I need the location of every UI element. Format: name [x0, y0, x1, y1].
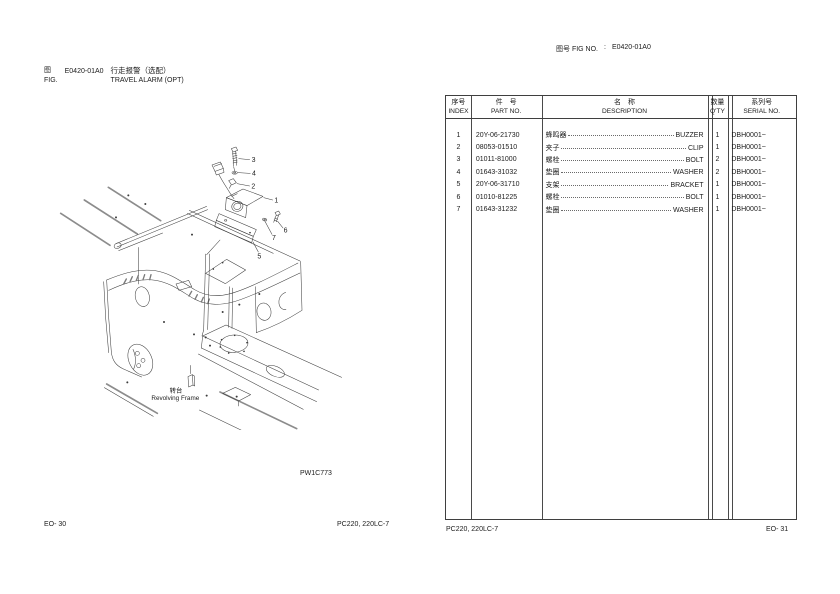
table-row: 2 08053-01510 夹子 CLIP 1 DBH0001~	[446, 141, 796, 153]
row-description-cell: 垫圈 WASHER	[541, 167, 707, 177]
row-index-cell: 7	[446, 206, 471, 213]
dot-leader	[568, 135, 673, 136]
right-page-number: EO- 31	[766, 526, 788, 533]
right-model-label: PC220, 220LC-7	[446, 526, 498, 533]
callout-7: 7	[272, 235, 276, 242]
parts-table-rows: 1 20Y-06-21730 蜂鸣器 BUZZER 1 DBH0001~ 2 0…	[446, 129, 796, 216]
row-qty-cell: 1	[708, 194, 728, 201]
row-desc-en: WASHER	[673, 169, 703, 176]
row-serial-cell: DBH0001~	[727, 194, 796, 201]
row-part-no-cell: 01643-31032	[471, 169, 542, 176]
row-qty-cell: 1	[708, 206, 728, 213]
parts-catalog-page: 图 FIG. E0420-01A0 行走报警（选配） TRAVEL ALARM …	[0, 0, 840, 594]
row-desc-en: BOLT	[686, 157, 704, 164]
row-desc-zh: 螺栓	[545, 155, 559, 165]
dot-leader	[561, 210, 671, 211]
header-part-en: PART NO.	[491, 107, 521, 116]
table-row: 3 01011-81000 螺栓 BOLT 2 DBH0001~	[446, 154, 796, 166]
parts-table: 序号 INDEX 件 号 PART NO. 名 称 DESCRIPTION 数量…	[445, 95, 797, 520]
row-qty-cell: 1	[708, 144, 728, 151]
callout-2: 2	[251, 183, 255, 190]
row-description-cell: 螺栓 BOLT	[541, 192, 707, 202]
row-description-cell: 支架 BRACKET	[541, 180, 707, 190]
header-serial-en: SERIAL NO.	[743, 107, 780, 116]
dot-leader	[561, 148, 685, 149]
dot-leader	[561, 185, 668, 186]
dot-leader	[561, 172, 671, 173]
row-desc-zh: 垫圈	[545, 167, 559, 177]
parts-table-header: 序号 INDEX 件 号 PART NO. 名 称 DESCRIPTION 数量…	[446, 96, 796, 119]
header-desc-en: DESCRIPTION	[602, 107, 647, 116]
figure-title-en: TRAVEL ALARM (OPT)	[111, 76, 184, 86]
row-index-cell: 4	[446, 169, 471, 176]
row-desc-en: BOLT	[686, 194, 704, 201]
callout-1: 1	[274, 198, 278, 205]
figure-header: 图 FIG. E0420-01A0 行走报警（选配） TRAVEL ALARM …	[44, 66, 184, 86]
fig-no-header: 图号 FIG NO. : E0420-01A0	[556, 44, 651, 54]
figure-number: E0420-01A0	[65, 67, 104, 86]
row-desc-en: BUZZER	[676, 132, 704, 139]
row-index-cell: 5	[446, 181, 471, 188]
row-desc-zh: 夹子	[545, 143, 559, 153]
row-index-cell: 6	[446, 194, 471, 201]
row-qty-cell: 2	[708, 156, 728, 163]
callout-3: 3	[252, 157, 256, 164]
callout-4: 4	[252, 171, 256, 178]
row-serial-cell: DBH0001~	[727, 132, 796, 139]
row-part-no-cell: 20Y-06-31710	[471, 181, 542, 188]
table-row: 4 01643-31032 垫圈 WASHER 2 DBH0001~	[446, 166, 796, 178]
row-desc-zh: 垫圈	[545, 205, 559, 215]
table-row: 7 01643-31232 垫圈 WASHER 1 DBH0001~	[446, 203, 796, 215]
drawing-number: PW1C773	[300, 470, 332, 477]
callout-6: 6	[284, 228, 288, 235]
header-index-zh: 序号	[451, 98, 465, 107]
table-row: 5 20Y-06-31710 支架 BRACKET 1 DBH0001~	[446, 179, 796, 191]
row-desc-en: BRACKET	[670, 182, 703, 189]
fig-label-zh: 图	[44, 66, 58, 76]
header-qty-zh: 数量	[710, 98, 724, 107]
callout-5: 5	[257, 254, 261, 261]
row-index-cell: 1	[446, 132, 471, 139]
fig-no-separator: :	[604, 44, 606, 54]
dot-leader	[561, 197, 683, 198]
row-serial-cell: DBH0001~	[727, 156, 796, 163]
table-row: 1 20Y-06-21730 蜂鸣器 BUZZER 1 DBH0001~	[446, 129, 796, 141]
row-description-cell: 蜂鸣器 BUZZER	[541, 130, 707, 140]
parts-diagram: 1 2 3 4 5 6 7 转台 Revolving Frame	[40, 130, 380, 430]
left-model-label: PC220, 220LC-7	[337, 521, 389, 528]
row-serial-cell: DBH0001~	[727, 181, 796, 188]
row-serial-cell: DBH0001~	[727, 144, 796, 151]
row-index-cell: 3	[446, 156, 471, 163]
row-serial-cell: DBH0001~	[727, 206, 796, 213]
frame-label-en: Revolving Frame	[151, 395, 199, 402]
figure-title-zh: 行走报警（选配）	[111, 66, 184, 76]
row-desc-zh: 支架	[545, 180, 559, 190]
row-desc-en: CLIP	[688, 145, 704, 152]
header-serial-zh: 系列号	[751, 98, 772, 107]
row-description-cell: 垫圈 WASHER	[541, 205, 707, 215]
row-desc-zh: 螺栓	[545, 192, 559, 202]
table-row: 6 01010-81225 螺栓 BOLT 1 DBH0001~	[446, 191, 796, 203]
row-desc-en: WASHER	[673, 207, 703, 214]
row-qty-cell: 1	[708, 181, 728, 188]
revolving-frame-drawing	[61, 187, 342, 430]
row-part-no-cell: 20Y-06-21730	[471, 132, 542, 139]
fig-no-label: 图号 FIG NO.	[556, 44, 598, 54]
row-index-cell: 2	[446, 144, 471, 151]
header-desc-zh: 名 称	[614, 98, 635, 107]
row-desc-zh: 蜂鸣器	[545, 130, 566, 140]
fig-label-en: FIG.	[44, 76, 58, 86]
row-part-no-cell: 08053-01510	[471, 144, 542, 151]
row-serial-cell: DBH0001~	[727, 169, 796, 176]
row-qty-cell: 1	[708, 132, 728, 139]
frame-label-zh: 转台	[170, 386, 183, 395]
row-part-no-cell: 01010-81225	[471, 194, 542, 201]
row-part-no-cell: 01011-81000	[471, 156, 542, 163]
row-description-cell: 夹子 CLIP	[541, 143, 707, 153]
row-qty-cell: 2	[708, 169, 728, 176]
fig-no-value: E0420-01A0	[612, 44, 651, 54]
header-qty-en: Q'TY	[710, 107, 725, 116]
header-part-zh: 件 号	[496, 98, 517, 107]
header-index-en: INDEX	[448, 107, 468, 116]
dot-leader	[561, 160, 683, 161]
left-page-number: EO- 30	[44, 521, 66, 528]
row-part-no-cell: 01643-31232	[471, 206, 542, 213]
row-description-cell: 螺栓 BOLT	[541, 155, 707, 165]
